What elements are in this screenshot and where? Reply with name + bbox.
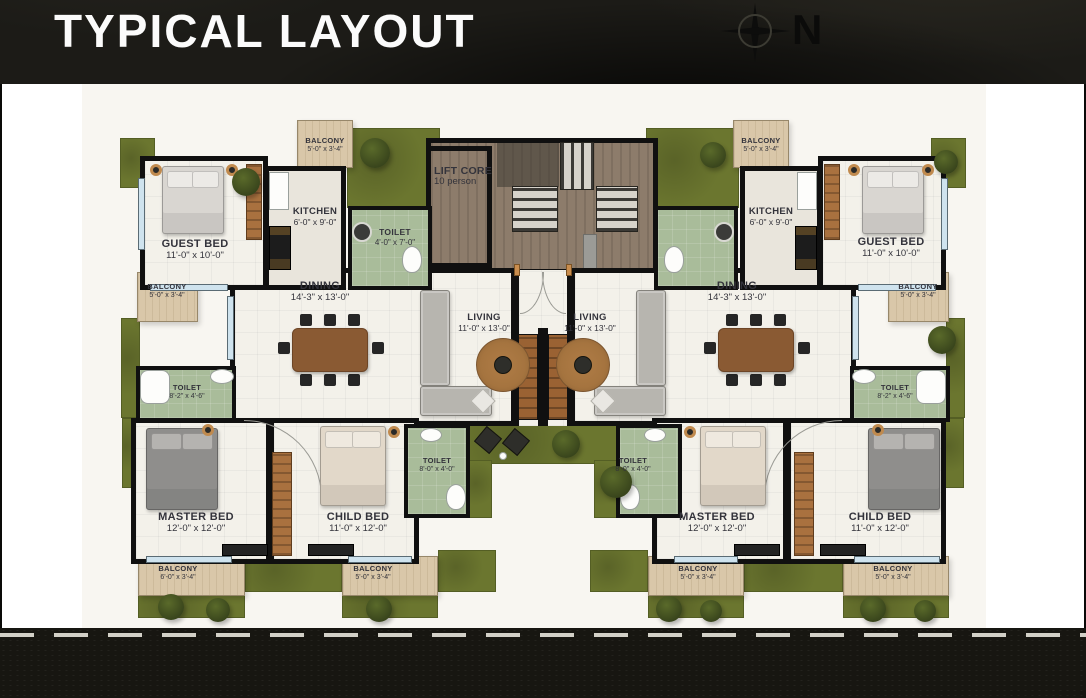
wall-lamp [150, 164, 162, 176]
toilet-wc [446, 484, 466, 510]
plant-bush [232, 168, 260, 196]
bed-guest-left [162, 166, 224, 234]
wall-lamp [388, 426, 400, 438]
window [146, 556, 232, 563]
tv-console [734, 544, 780, 556]
dining-chair [704, 342, 716, 354]
dining-table-right [718, 328, 794, 372]
sofa-right [636, 290, 666, 386]
plant-palm [914, 600, 936, 622]
grass-patch [646, 128, 739, 208]
toilet-basin [644, 428, 666, 442]
road-center-line [0, 633, 1086, 637]
room-label-living-right: LIVING11'-0" x 13'-0" [535, 313, 645, 334]
toilet-wc [402, 246, 422, 273]
bed-master-right [700, 426, 766, 506]
room-label-balcony-bottom-right-b: BALCONY5'-0" x 3'-4" [843, 565, 943, 582]
coffee-table [574, 356, 592, 374]
room-label-balcony-bottom-left-b: BALCONY5'-0" x 3'-4" [323, 565, 423, 582]
wall-lamp [202, 424, 214, 436]
window [348, 556, 412, 563]
dining-chair [726, 314, 738, 326]
wardrobe [272, 452, 292, 556]
stair-landing [497, 143, 559, 187]
window [227, 296, 234, 360]
door-jamb [514, 264, 520, 276]
toilet-basin [210, 369, 234, 384]
wardrobe [794, 452, 814, 556]
dining-chair [726, 374, 738, 386]
stair-flight-top [560, 142, 594, 190]
room-label-kitchen-right: KITCHEN6'-0" x 9'-0" [741, 207, 801, 228]
wardrobe [824, 164, 840, 240]
kitchen-stove [795, 226, 817, 270]
bed-guest-right [862, 166, 924, 234]
compass-icon [738, 14, 772, 48]
plant-palm [860, 596, 886, 622]
door-jamb [566, 264, 572, 276]
grass-patch [438, 550, 496, 592]
common-toilet-right [654, 206, 738, 290]
slide: TYPICAL LAYOUT N [0, 0, 1086, 698]
toilet-basin [852, 369, 876, 384]
room-label-master-toilet-left: TOILET8'-2" x 4'-6" [147, 384, 227, 401]
room-label-balcony-side-right: BALCONY5'-0" x 3'-4" [887, 283, 949, 300]
kitchen-stove [269, 226, 291, 270]
dining-chair [348, 314, 360, 326]
room-label-dining-left: DINING14'-3" x 13'-0" [250, 280, 390, 304]
window [852, 296, 859, 360]
stair-mat [583, 234, 597, 272]
dining-chair [278, 342, 290, 354]
common-toilet-left [348, 206, 432, 290]
plant-palm [206, 598, 230, 622]
room-label-living-left: LIVING11'-0" x 13'-0" [429, 313, 539, 334]
wall-lamp [922, 164, 934, 176]
room-label-master-toilet-right: TOILET8'-2" x 4'-6" [855, 384, 935, 401]
page-title: TYPICAL LAYOUT [54, 4, 476, 58]
room-label-kitchen-left: KITCHEN6'-0" x 9'-0" [285, 207, 345, 228]
room-label-common-toilet-left: TOILET 4'-0" x 7'-0" [363, 228, 427, 247]
kitchen-sink-counter [797, 172, 817, 210]
bed-child-left [320, 426, 386, 506]
dining-chair [798, 342, 810, 354]
room-label-child-bed-right: CHILD BED11'-0" x 12'-0" [820, 511, 940, 535]
coffee-table [494, 356, 512, 374]
room-label-balcony-top-right: BALCONY5'-0" x 3'-4" [733, 137, 789, 154]
plant-bush [552, 430, 580, 458]
toilet-basin [714, 222, 734, 242]
toilet-basin [420, 428, 442, 442]
road-strip [0, 628, 1086, 698]
patio-table [499, 452, 507, 460]
room-label-child-toilet-right: TOILET8'-0" x 4'-0" [598, 457, 668, 474]
plant-palm [366, 596, 392, 622]
room-label-balcony-bottom-right-a: BALCONY5'-0" x 3'-4" [648, 565, 748, 582]
room-label-master-bed-left: MASTER BED12'-0" x 12'-0" [136, 511, 256, 535]
wall-lamp [684, 426, 696, 438]
dining-chair [324, 374, 336, 386]
tv-console [308, 544, 354, 556]
dining-chair [372, 342, 384, 354]
sofa-left [420, 290, 450, 386]
room-label-balcony-bottom-left-a: BALCONY6'-0" x 3'-4" [128, 565, 228, 582]
dining-chair [774, 314, 786, 326]
compass-north-label: N [792, 6, 822, 54]
dining-chair [750, 374, 762, 386]
window [854, 556, 940, 563]
entry-door-post [538, 328, 548, 426]
dining-table-left [292, 328, 368, 372]
kitchen-sink-counter [269, 172, 289, 210]
toilet-wc [664, 246, 684, 273]
dining-chair [324, 314, 336, 326]
wall-lamp [872, 424, 884, 436]
room-label-lift-core: LIFT CORE 10 person [434, 165, 504, 188]
room-label-guest-bed-right: GUEST BED11'-0" x 10'-0" [831, 236, 951, 260]
tv-console [222, 544, 268, 556]
room-label-master-bed-right: MASTER BED12'-0" x 12'-0" [657, 511, 777, 535]
plant-palm [700, 600, 722, 622]
dining-chair [300, 314, 312, 326]
room-label-guest-bed-left: GUEST BED11'-0" x 10'-0" [135, 238, 255, 262]
bed-master-left [146, 428, 218, 510]
plant-bush [360, 138, 390, 168]
room-label-child-bed-left: CHILD BED11'-0" x 12'-0" [298, 511, 418, 535]
plant-bush [934, 150, 958, 174]
grass-patch [590, 550, 648, 592]
room-label-balcony-top-left: BALCONY5'-0" x 3'-4" [297, 137, 353, 154]
plant-bush [928, 326, 956, 354]
stair-flight-left [512, 186, 558, 232]
room-label-balcony-side-left: BALCONY5'-0" x 3'-4" [136, 283, 198, 300]
tv-console [820, 544, 866, 556]
wall-lamp [848, 164, 860, 176]
dining-chair [774, 374, 786, 386]
bed-child-right [868, 428, 940, 510]
room-label-dining-right: DINING14'-3" x 13'-0" [667, 280, 807, 304]
dining-chair [300, 374, 312, 386]
room-label-child-toilet-left: TOILET8'-0" x 4'-0" [402, 457, 472, 474]
plant-bush [700, 142, 726, 168]
window [674, 556, 738, 563]
dining-chair [348, 374, 360, 386]
stair-flight-right [596, 186, 638, 232]
dining-chair [750, 314, 762, 326]
plant-palm [656, 596, 682, 622]
plant-palm [158, 594, 184, 620]
